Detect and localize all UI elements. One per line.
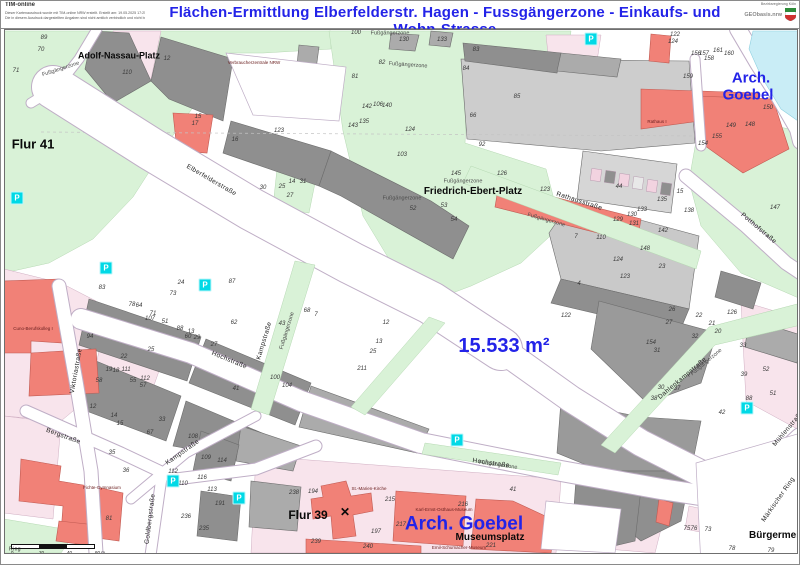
- parcel-number: 107: [145, 316, 155, 322]
- parcel-number: 133: [637, 207, 647, 213]
- parcel-number: 126: [497, 171, 507, 177]
- scale-tick: 40: [67, 550, 72, 554]
- nrw-coat-of-arms-icon: [785, 8, 796, 21]
- parking-icon: P: [11, 192, 24, 205]
- parcel-number: 32: [692, 334, 699, 340]
- parcel-number: 159: [683, 74, 693, 80]
- parcel-number: 78: [129, 302, 136, 308]
- parcel-number: 148: [640, 246, 650, 252]
- parcel-number: 12: [383, 320, 390, 326]
- parcel-number: 161: [713, 48, 723, 54]
- place-label: Flur 39: [288, 509, 327, 521]
- parcel-number: 240: [363, 544, 373, 550]
- architect-area-annotation: Arch.: [732, 71, 770, 86]
- parcel-number: 123: [620, 274, 630, 280]
- parcel-number: 52: [410, 206, 417, 212]
- pedestrian-zone-label: Fußgängerzone: [383, 196, 422, 202]
- place-label: Museumsplatz: [456, 533, 525, 543]
- parcel-number: 7: [574, 234, 577, 240]
- place-label: Friedrich-Ebert-Platz: [424, 187, 522, 197]
- parcel-number: 135: [657, 197, 667, 203]
- parcel-number: 17: [192, 121, 199, 127]
- parcel-number: 16: [232, 137, 239, 143]
- parcel-number: 67: [147, 430, 154, 436]
- parcel-number: 82: [379, 60, 386, 66]
- parcel-number: 27: [211, 342, 218, 348]
- parcel-number: 81: [352, 74, 359, 80]
- building-label: Emil-Schumacher-Museum: [432, 546, 486, 551]
- parcel-number: 12: [164, 56, 171, 62]
- parcel-number: 114: [217, 458, 227, 464]
- building-label: Fichte-Gymnasium: [83, 486, 121, 491]
- parcel-number: 239: [311, 539, 321, 545]
- building-label: St.-Marien-Kirche: [351, 487, 386, 492]
- parcel-number: 216: [458, 502, 468, 508]
- building-label: Rathaus I: [647, 120, 666, 125]
- parcel-number: 94: [87, 334, 94, 340]
- parcel-number: 30: [260, 185, 267, 191]
- parcel-number: 235: [199, 526, 209, 532]
- parcel-number: 126: [727, 310, 737, 316]
- parcel-number: 14: [289, 179, 296, 185]
- parking-icon: P: [741, 402, 754, 415]
- parcel-number: 29: [194, 335, 201, 341]
- parcel-number: 100: [270, 375, 280, 381]
- building-label: Karl-Ernst-Osthaus-Museum: [415, 508, 472, 513]
- parcel-number: 110: [596, 235, 606, 241]
- place-label: Flur 41: [12, 138, 55, 151]
- app-name: TIM-online: [5, 2, 145, 8]
- parcel-number: 51: [162, 319, 169, 325]
- parking-icon: P: [167, 475, 180, 488]
- parcel-number: 145: [451, 171, 461, 177]
- parcel-number: 110: [122, 70, 132, 76]
- parcel-number: 41: [510, 487, 517, 493]
- parcel-number: 122: [561, 313, 571, 319]
- disclaimer-line2: Die in diesem Ausdruck dargestellten Ang…: [5, 16, 145, 21]
- parcel-number: 133: [437, 37, 447, 43]
- parcel-number: 147: [770, 205, 780, 211]
- architect-area-annotation: 15.533 m²: [458, 336, 549, 356]
- parcel-number: 15: [195, 114, 202, 120]
- parcel-number: 44: [616, 184, 623, 190]
- parcel-number: 150: [763, 105, 773, 111]
- parcel-number: 78: [729, 546, 736, 552]
- parcel-number: 22: [121, 354, 128, 360]
- parcel-number: 158: [704, 56, 714, 62]
- geobasis-label: GEObasis.nrw: [744, 12, 782, 18]
- parcel-number: 57: [140, 383, 147, 389]
- parcel-number: 54: [451, 217, 458, 223]
- parcel-number: 211: [357, 366, 367, 372]
- parcel-number: 236: [181, 514, 191, 520]
- parcel-number: 33: [159, 417, 166, 423]
- parcel-number: 51: [770, 391, 777, 397]
- parcel-number: 104: [282, 383, 292, 389]
- building-label: Cuno-Berufskolleg I: [13, 327, 53, 332]
- pedestrian-zone-label: Fußgängerzone: [444, 179, 483, 185]
- parcel-number: 108: [188, 434, 198, 440]
- parcel-number: 68: [304, 308, 311, 314]
- parcel-number: 73: [170, 291, 177, 297]
- parcel-number: 79: [768, 548, 775, 554]
- parcel-number: 135: [359, 119, 369, 125]
- map-base: [4, 29, 798, 554]
- parcel-number: 58: [96, 378, 103, 384]
- parcel-number: 84: [463, 66, 470, 72]
- parcel-number: 238: [289, 490, 299, 496]
- parcel-number: 66: [470, 113, 477, 119]
- parcel-number: 116: [197, 475, 207, 481]
- parcel-number: 27: [666, 320, 673, 326]
- parcel-number: 160: [724, 51, 734, 57]
- parcel-number: 88: [177, 326, 184, 332]
- parcel-number: 75: [684, 526, 691, 532]
- parcel-number: 14: [111, 413, 118, 419]
- scale-tick: 20: [39, 550, 44, 554]
- parcel-number: 64: [136, 303, 143, 309]
- parcel-number: 52: [763, 367, 770, 373]
- map-world: 0204060 m 15.533 m²Arch.GoebelArch. Goeb…: [4, 29, 798, 554]
- parcel-number: 19: [106, 367, 113, 373]
- parking-icon: P: [100, 262, 113, 275]
- parcel-number: 62: [231, 320, 238, 326]
- parcel-number: 30: [658, 385, 665, 391]
- parcel-number: 25: [370, 349, 377, 355]
- parcel-number: 73: [705, 527, 712, 533]
- parcel-number: 148: [745, 122, 755, 128]
- parcel-number: 18: [113, 368, 120, 374]
- parcel-number: 129: [613, 217, 623, 223]
- parcel-number: 35: [109, 450, 116, 456]
- parcel-number: 37: [674, 386, 681, 392]
- parcel-number: 71: [13, 68, 20, 74]
- parcel-number: 31: [300, 179, 307, 185]
- parcel-number: 43: [279, 321, 286, 327]
- parcel-number: 25: [279, 184, 286, 190]
- parcel-number: 100: [351, 30, 361, 36]
- street-label: Ring: [9, 548, 21, 553]
- parcel-number: 123: [274, 128, 284, 134]
- parcel-number: 155: [712, 134, 722, 140]
- parcel-number: 109: [201, 455, 211, 461]
- parcel-number: 92: [479, 142, 486, 148]
- parcel-number: 55: [130, 378, 137, 384]
- parcel-number: 25: [148, 347, 155, 353]
- parcel-number: 111: [121, 367, 130, 373]
- parcel-number: 21: [709, 321, 716, 327]
- parcel-number: 13: [376, 339, 383, 345]
- header: TIM-online Dieser Kartenausdruck wurde m…: [1, 1, 799, 29]
- parcel-number: 42: [719, 410, 726, 416]
- parcel-number: 124: [668, 39, 678, 45]
- parking-icon: P: [451, 434, 464, 447]
- parcel-number: 142: [362, 104, 372, 110]
- parking-icon: P: [233, 492, 246, 505]
- building-label: Verbraucherzentrale NRW: [228, 61, 280, 66]
- parcel-number: 154: [698, 141, 708, 147]
- parcel-number: 123: [540, 187, 550, 193]
- parcel-number: 191: [215, 501, 225, 507]
- parcel-number: 87: [229, 279, 236, 285]
- parcel-number: 89: [41, 35, 48, 41]
- parcel-number: 60: [185, 334, 192, 340]
- parcel-number: 131: [629, 221, 639, 227]
- parcel-number: 130: [399, 37, 409, 43]
- parcel-number: 22: [696, 313, 703, 319]
- parcel-number: 23: [659, 264, 666, 270]
- place-label: Bürgermeister: [749, 531, 798, 541]
- parcel-number: 142: [658, 228, 668, 234]
- parcel-number: 36: [123, 468, 130, 474]
- parcel-number: 124: [405, 127, 415, 133]
- logo-caption: Bezirksregierung Köln: [738, 2, 796, 6]
- parcel-number: 122: [670, 32, 680, 38]
- parcel-number: 15: [677, 189, 684, 195]
- parcel-number: 197: [371, 529, 381, 535]
- parcel-number: 124: [613, 257, 623, 263]
- header-left: TIM-online Dieser Kartenausdruck wurde m…: [5, 2, 145, 27]
- parcel-number: 33: [740, 343, 747, 349]
- parcel-number: 7: [314, 312, 317, 318]
- parcel-number: 138: [684, 208, 694, 214]
- parcel-number: 221: [486, 543, 496, 549]
- map-canvas: 0204060 m 15.533 m²Arch.GoebelArch. Goeb…: [4, 29, 798, 554]
- parcel-number: 38: [651, 396, 658, 402]
- parcel-number: 217: [396, 522, 406, 528]
- parking-icon: P: [199, 279, 212, 292]
- logo-block: Bezirksregierung Köln GEObasis.nrw: [738, 2, 796, 27]
- parcel-number: 83: [473, 47, 480, 53]
- parcel-number: 143: [348, 123, 358, 129]
- parcel-number: 103: [397, 152, 407, 158]
- pedestrian-zone-label: Fußgängerzone: [371, 31, 410, 37]
- parcel-number: 194: [308, 489, 318, 495]
- parcel-number: 53: [441, 203, 448, 209]
- parcel-number: 154: [646, 340, 656, 346]
- parcel-number: 140: [382, 103, 392, 109]
- parcel-number: 130: [627, 212, 637, 218]
- scale-tick: 60 m: [95, 550, 105, 554]
- parcel-number: 15: [117, 421, 124, 427]
- parcel-number: 215: [385, 497, 395, 503]
- architect-area-annotation: Arch. Goebel: [405, 515, 523, 534]
- parcel-number: 4: [577, 281, 580, 287]
- parcel-number: 149: [726, 123, 736, 129]
- parcel-number: 112: [140, 376, 150, 382]
- scale-bar: [11, 544, 95, 549]
- parcel-number: 31: [654, 348, 661, 354]
- parcel-number: 12: [90, 404, 97, 410]
- parcel-number: 83: [99, 285, 106, 291]
- parcel-number: 41: [233, 386, 240, 392]
- parcel-number: 70: [38, 47, 45, 53]
- parking-icon: P: [585, 33, 598, 46]
- parcel-number: 24: [178, 280, 185, 286]
- parcel-number: 110: [178, 481, 188, 487]
- parcel-number: 81: [106, 516, 113, 522]
- parcel-number: 26: [669, 307, 676, 313]
- church-cross-symbol: ✕: [340, 506, 350, 518]
- parcel-number: 39: [741, 372, 748, 378]
- architect-area-annotation: Goebel: [723, 88, 774, 103]
- disclaimer-line1: Dieser Kartenausdruck wurde mit TIM-onli…: [5, 11, 145, 16]
- parcel-number: 113: [207, 487, 217, 493]
- parcel-number: 20: [715, 329, 722, 335]
- print-page: TIM-online Dieser Kartenausdruck wurde m…: [0, 0, 800, 565]
- parcel-number: 85: [514, 94, 521, 100]
- parcel-number: 27: [287, 193, 294, 199]
- parcel-number: 76: [691, 526, 698, 532]
- place-label: Adolf-Nassau-Platz: [78, 52, 160, 61]
